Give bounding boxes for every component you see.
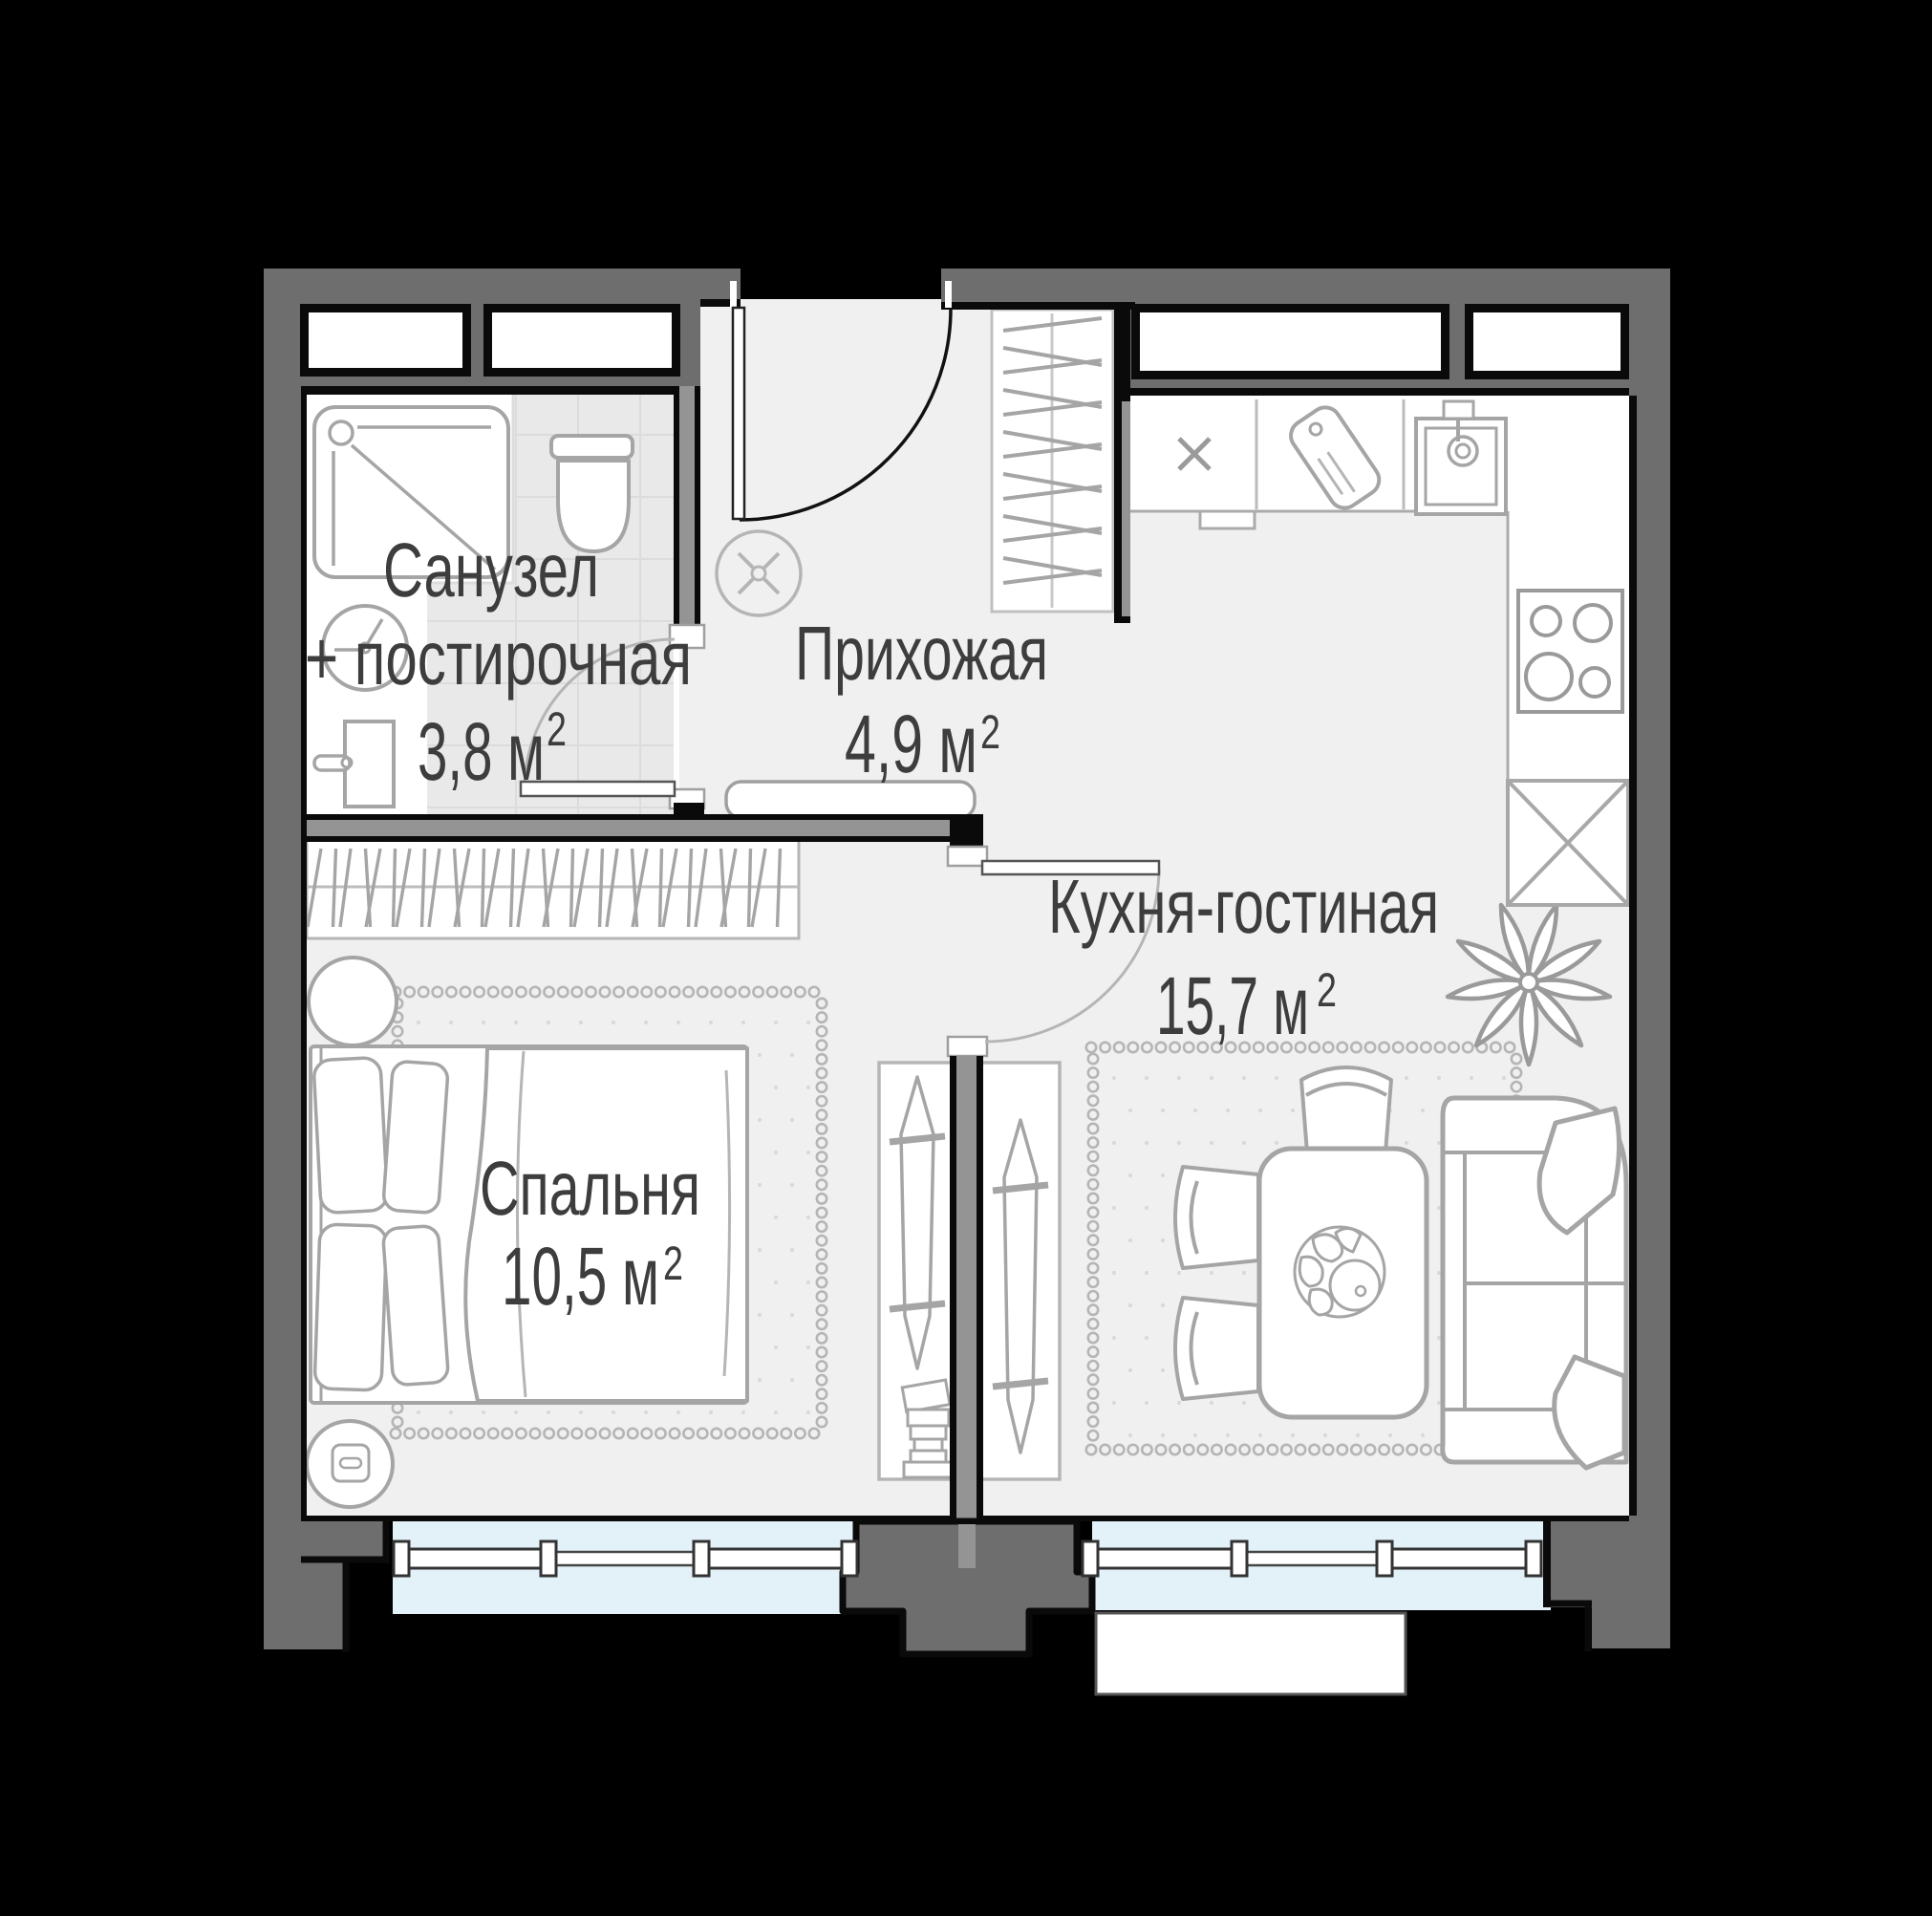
svg-text:2: 2 (663, 1237, 683, 1290)
svg-text:4,9 м: 4,9 м (845, 699, 977, 790)
svg-text:2: 2 (980, 705, 1000, 759)
svg-text:15,7 м: 15,7 м (1156, 960, 1309, 1052)
svg-text:2: 2 (1317, 963, 1337, 1017)
svg-text:3,8 м: 3,8 м (418, 706, 545, 798)
svg-text:10,5 м: 10,5 м (502, 1231, 659, 1323)
svg-text:Санузел: Санузел (383, 527, 599, 613)
svg-text:+ постирочная: + постирочная (305, 615, 692, 700)
svg-text:Прихожая: Прихожая (795, 611, 1048, 696)
svg-text:Кухня-гостиная: Кухня-гостиная (1048, 864, 1439, 949)
svg-text:2: 2 (547, 702, 567, 756)
svg-text:Спальня: Спальня (480, 1146, 700, 1231)
